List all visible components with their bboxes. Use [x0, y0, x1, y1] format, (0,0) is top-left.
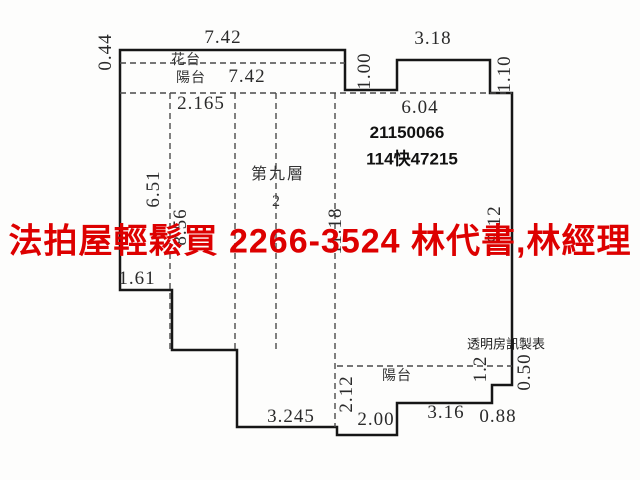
dimension-label: 1.10 [494, 55, 516, 92]
dimension-label: 3.16 [427, 402, 464, 424]
watermark-text: 法拍屋輕鬆買 2266-3524 林代書,林經理 [9, 214, 632, 263]
dimension-label: 7.42 [228, 66, 265, 88]
dimension-label: 1.00 [354, 52, 376, 89]
room-label: 2 [272, 193, 282, 211]
dimension-label: 7.42 [204, 27, 241, 49]
room-label: 第九層 [251, 160, 305, 184]
credit-label: 透明房訊製表 [467, 334, 545, 353]
dimension-label: 2.00 [357, 409, 394, 431]
case-number: 114快47215 [366, 145, 458, 170]
dimension-label: 3.245 [267, 406, 315, 428]
area-label: 陽台 [382, 365, 412, 385]
dimension-label: 0.50 [514, 353, 536, 390]
dimension-label: 3.18 [414, 28, 451, 50]
area-label: 陽台 [176, 67, 206, 87]
area-label: 花台 [171, 49, 201, 69]
dimension-label: 2.165 [177, 93, 225, 115]
dimension-label: 0.44 [95, 33, 117, 70]
dimension-label: 1.61 [118, 268, 155, 290]
dimension-label: 0.88 [479, 406, 516, 428]
dimension-label: 6.51 [143, 170, 165, 207]
dimension-label: 1.2 [470, 356, 492, 383]
dimension-label: 2.12 [336, 375, 358, 412]
dimension-label: 6.04 [401, 97, 438, 119]
floor-plan-canvas: 7.420.44花台陽台7.422.1651.003.181.106.04211… [0, 0, 640, 480]
case-number: 21150066 [370, 123, 445, 143]
